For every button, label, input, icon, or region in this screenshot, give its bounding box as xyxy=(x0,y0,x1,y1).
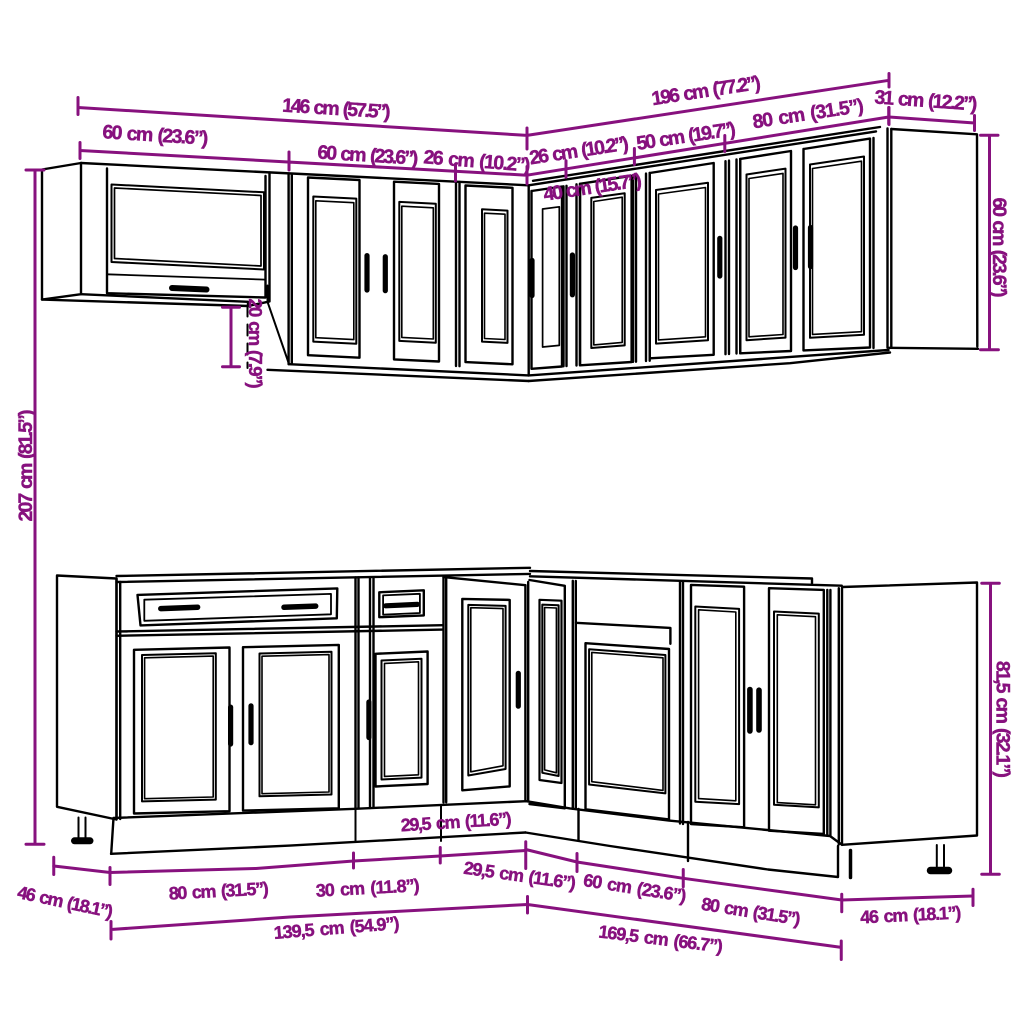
svg-text:20 cm (7.9”): 20 cm (7.9”) xyxy=(245,299,266,389)
svg-text:81,5 cm (32.1”): 81,5 cm (32.1”) xyxy=(992,661,1014,778)
svg-text:60 cm (23.6”): 60 cm (23.6”) xyxy=(988,197,1010,297)
svg-text:207 cm (81.5”): 207 cm (81.5”) xyxy=(15,410,37,522)
